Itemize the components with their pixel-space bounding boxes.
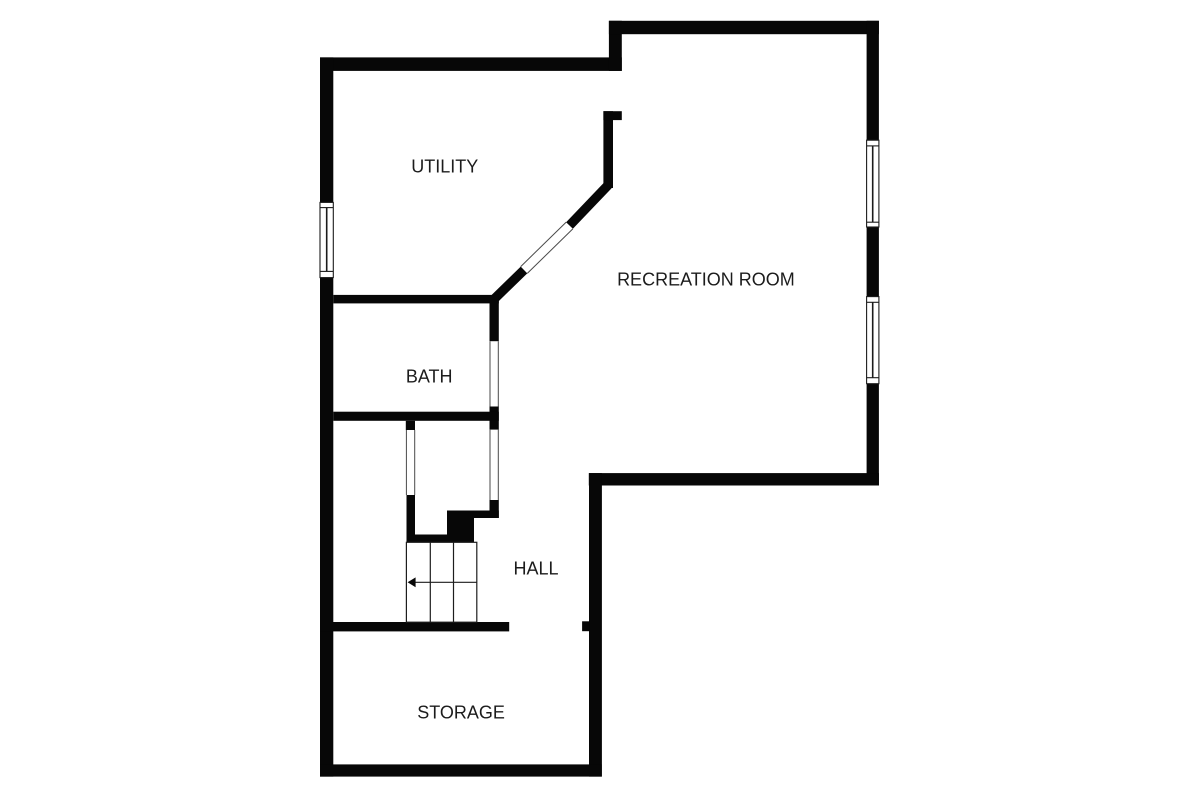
svg-text:RECREATION ROOM: RECREATION ROOM [617, 270, 795, 290]
svg-text:STORAGE: STORAGE [417, 703, 505, 723]
svg-text:BATH: BATH [406, 366, 453, 386]
svg-text:UTILITY: UTILITY [411, 156, 478, 176]
svg-text:HALL: HALL [513, 559, 558, 579]
